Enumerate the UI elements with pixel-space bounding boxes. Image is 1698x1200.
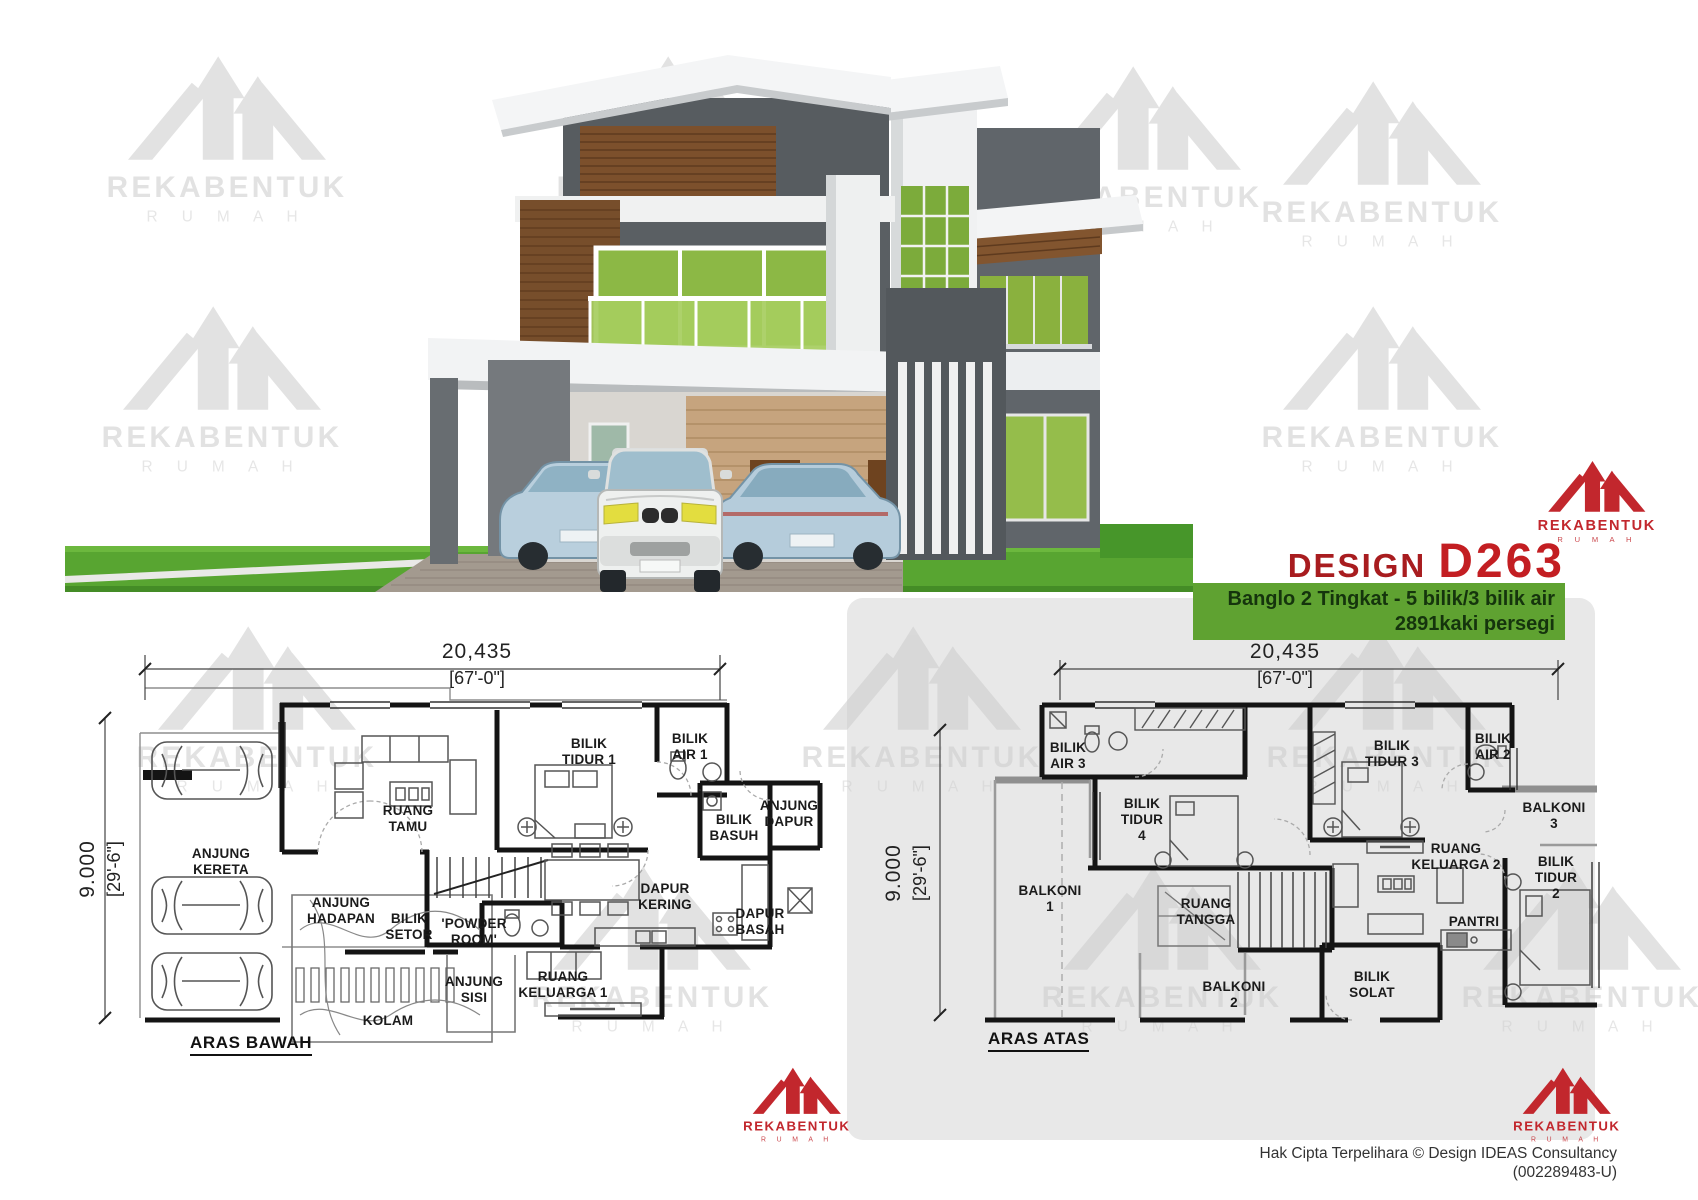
house-rendering bbox=[65, 55, 1193, 592]
watermark-logo-icon bbox=[532, 866, 773, 1035]
brand-logo-icon bbox=[1513, 1068, 1620, 1144]
plan-car-icon bbox=[152, 877, 272, 934]
brand-logo-icon bbox=[1538, 461, 1656, 544]
poster-canvas: REKABENTUK R U M A H bbox=[0, 0, 1698, 1200]
watermark-logo-icon bbox=[1262, 306, 1503, 475]
car-suv-center bbox=[588, 448, 732, 592]
watermark-logo-icon bbox=[102, 306, 343, 475]
watermark-logo-icon bbox=[1267, 626, 1508, 795]
watermark-logo-icon bbox=[1262, 81, 1503, 250]
plan-car-icon bbox=[152, 953, 272, 1010]
watermark-logo-icon bbox=[107, 56, 348, 225]
brand-logo-icon bbox=[743, 1068, 850, 1144]
watermark-logo-icon bbox=[1462, 866, 1698, 1035]
watermark-logo-icon bbox=[802, 626, 1043, 795]
